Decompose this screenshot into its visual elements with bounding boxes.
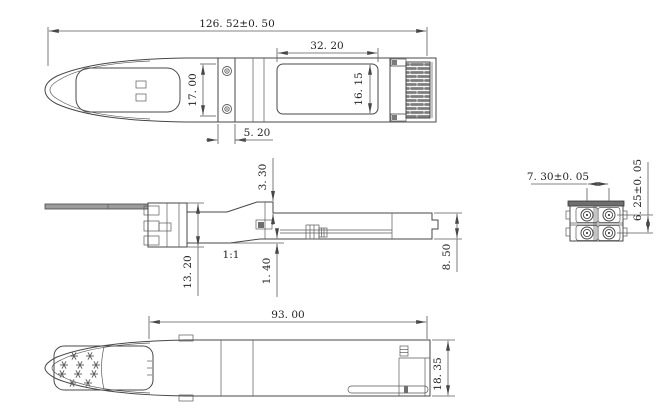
star-icon	[90, 370, 98, 377]
ferrule-icon	[581, 209, 593, 221]
dim-ferrule-pitch-horizontal-label: 7. 30±0. 05	[527, 171, 589, 183]
dim-top-inner-height: 17. 00	[187, 64, 216, 116]
dim-front-height-label: 13. 20	[182, 255, 194, 288]
bottom-slot	[348, 386, 428, 393]
dim-overall-length: 126. 52±0. 50	[48, 18, 427, 66]
end-housing	[570, 206, 623, 241]
bail-handle	[45, 204, 148, 209]
dim-body-width-label: 18. 35	[432, 357, 444, 390]
receptacle-tab	[144, 221, 159, 231]
dim-window-height: 16. 15	[353, 65, 370, 113]
star-icon	[60, 361, 68, 368]
top-nose-inner-line	[50, 61, 150, 119]
dim-ferrule-pitch-vertical: 6. 25±0. 05	[617, 159, 653, 233]
vent-grid	[400, 346, 408, 356]
star-icon	[74, 370, 82, 377]
end-latch-pad	[392, 60, 397, 65]
end-top-bar	[568, 201, 624, 206]
dim-rear-height-label: 8. 50	[441, 244, 453, 271]
end-side-tab	[623, 228, 627, 236]
bottom-nose-inner-line	[52, 343, 150, 393]
latch-tab-lower	[136, 94, 146, 101]
edge-connector-bricks	[406, 62, 430, 118]
dim-overall-length-label: 126. 52±0. 50	[199, 18, 275, 30]
ferrule-icon	[581, 227, 593, 239]
dim-window-height-label: 16. 15	[353, 72, 365, 105]
dim-lower-body-length-label: 93. 00	[271, 309, 304, 321]
receptacle-tab	[144, 236, 159, 245]
ferrule-icon	[603, 227, 615, 239]
plug-block	[306, 225, 319, 239]
bottom-view: 93. 00 18. 35	[45, 309, 455, 401]
dim-lower-body-length: 93. 00	[149, 309, 427, 339]
bottom-body-outline	[45, 340, 430, 396]
latch-pad	[258, 222, 264, 228]
dim-ferrule-pitch-horizontal: 7. 30±0. 05	[527, 171, 609, 202]
front-receptacle-block	[148, 203, 187, 247]
dim-screw-strip-width-label: 5. 20	[244, 127, 271, 139]
star-icon	[92, 361, 100, 368]
drawing-canvas: 126. 52±0. 50 32. 20 17. 00 16. 15	[0, 0, 671, 414]
slot-pad	[404, 386, 408, 393]
side-view: 3. 30 13. 20 1:1 1. 40 8. 50	[45, 158, 462, 297]
transceiver-drawing: 126. 52±0. 50 32. 20 17. 00 16. 15	[0, 0, 671, 414]
receptacle-detail	[159, 223, 171, 231]
top-view: 126. 52±0. 50 32. 20 17. 00 16. 15	[45, 18, 436, 144]
star-icon	[76, 361, 84, 368]
dim-rear-top-offset-label: 3. 30	[257, 164, 269, 191]
plug-nub	[319, 228, 327, 237]
dim-body-width: 18. 35	[432, 340, 455, 396]
top-latch-slider	[76, 68, 180, 112]
dim-ferrule-pitch-vertical-label: 6. 25±0. 05	[632, 159, 644, 221]
dim-front-height: 13. 20	[182, 203, 204, 296]
end-view: 7. 30±0. 05 6. 25±0. 05	[527, 159, 653, 241]
end-side-tab	[566, 228, 570, 236]
end-latch-pad	[392, 115, 397, 120]
side-body-profile	[187, 202, 438, 243]
screw-icon	[223, 67, 232, 76]
panel-divider	[102, 347, 105, 389]
dim-screw-strip-width: 5. 20	[206, 124, 273, 144]
end-side-tab	[566, 211, 570, 219]
dim-top-inner-height-label: 17. 00	[187, 73, 199, 106]
screw-icon	[223, 105, 232, 114]
latch-tab-upper	[136, 81, 146, 88]
ferrule-icon	[603, 209, 615, 221]
dim-window-width: 32. 20	[277, 40, 378, 62]
dim-rear-bottom-offset-label: 1. 40	[261, 258, 273, 285]
star-icon	[86, 352, 94, 359]
scale-label: 1:1	[223, 249, 240, 261]
dim-window-width-label: 32. 20	[310, 40, 343, 52]
